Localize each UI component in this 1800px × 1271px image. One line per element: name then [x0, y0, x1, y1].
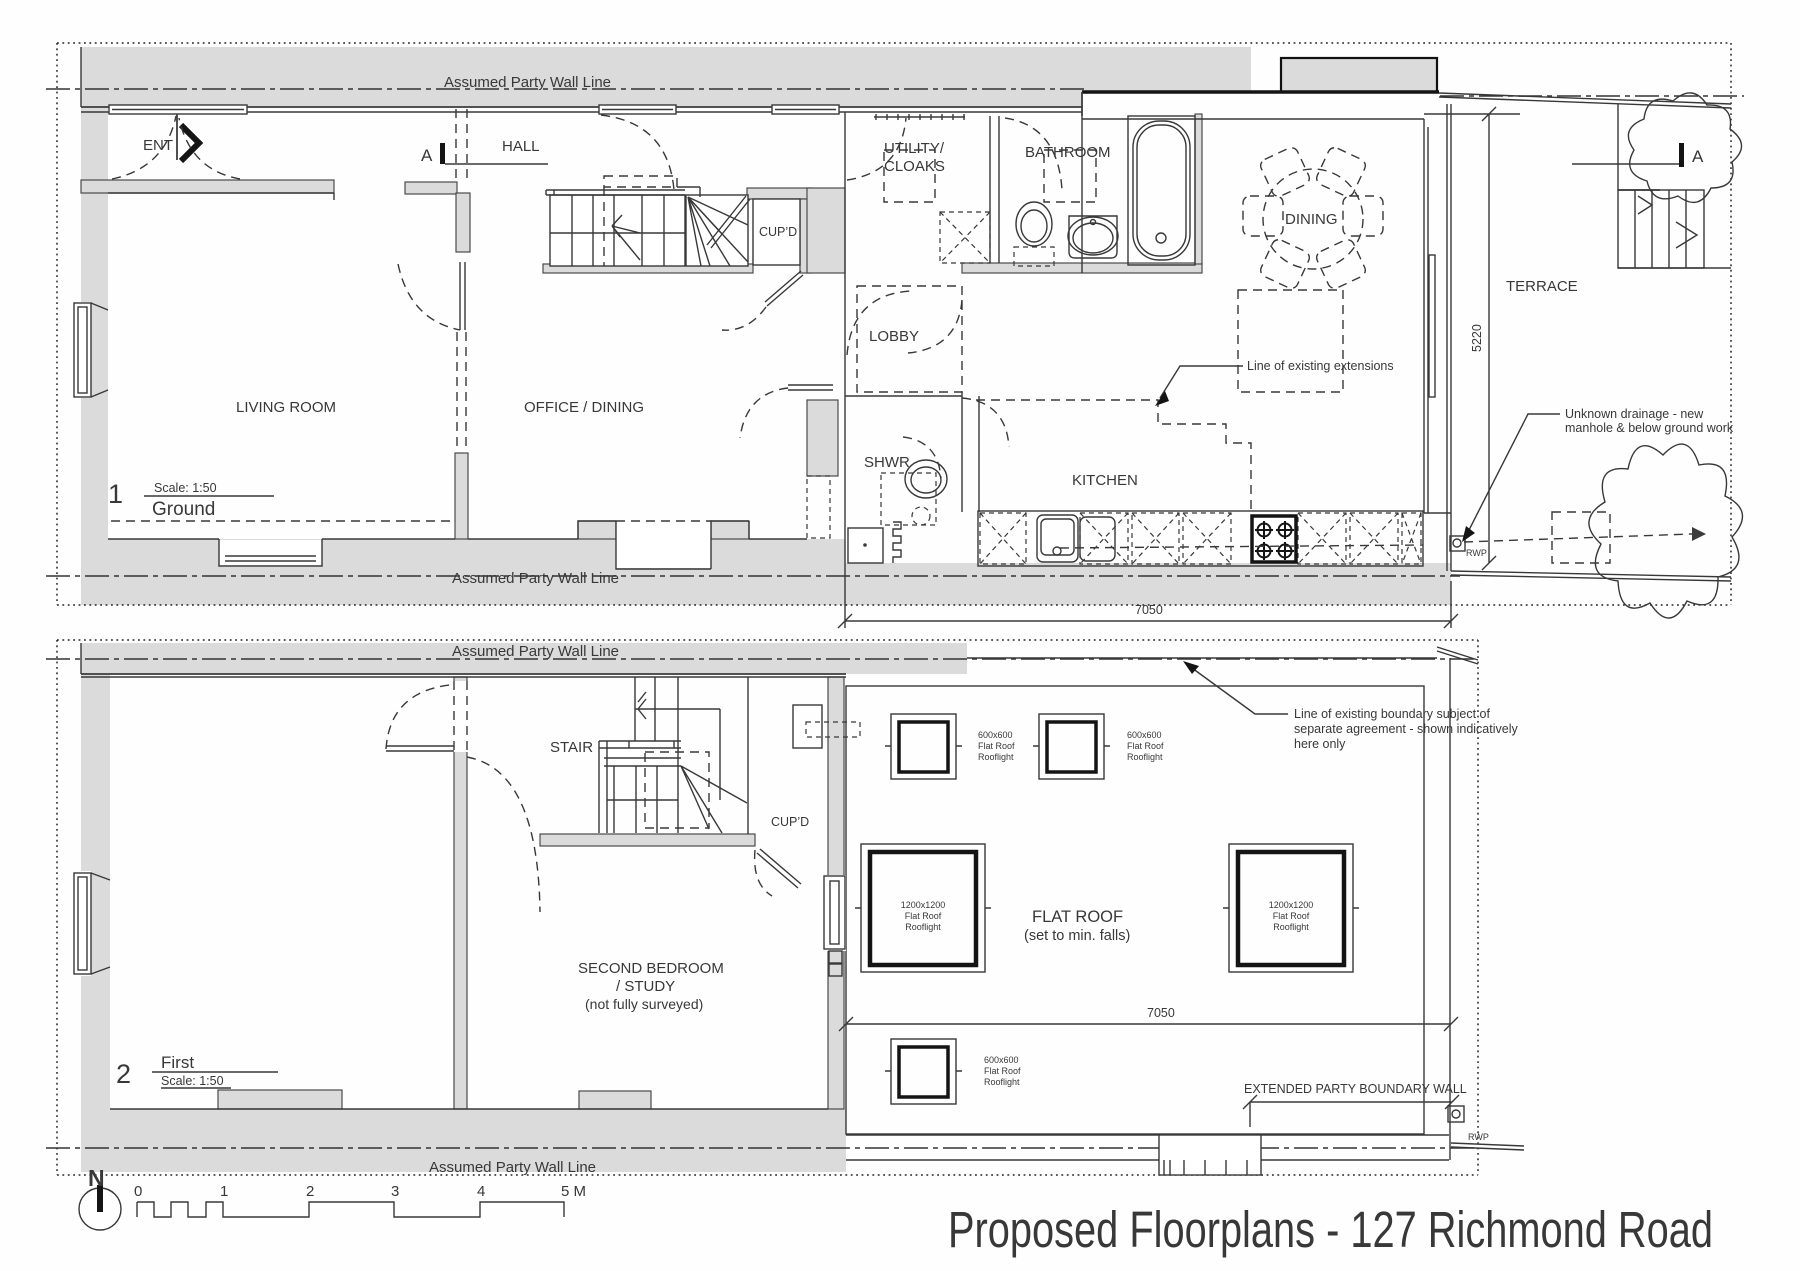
svg-text:600x600: 600x600	[978, 730, 1013, 740]
svg-text:/ STUDY: / STUDY	[616, 978, 675, 995]
svg-text:1: 1	[220, 1183, 228, 1200]
svg-text:Flat Roof: Flat Roof	[984, 1066, 1021, 1076]
svg-text:4: 4	[477, 1183, 485, 1200]
svg-text:Flat Roof: Flat Roof	[1273, 911, 1310, 921]
svg-text:600x600: 600x600	[984, 1055, 1019, 1065]
svg-text:BATHROOM: BATHROOM	[1025, 144, 1111, 161]
svg-text:Rooflight: Rooflight	[984, 1077, 1020, 1087]
svg-text:Assumed Party Wall Line: Assumed Party Wall Line	[429, 1159, 596, 1176]
svg-text:A: A	[1692, 147, 1704, 166]
svg-text:Proposed Floorplans - 127 Rich: Proposed Floorplans - 127 Richmond Road	[948, 1201, 1713, 1258]
svg-text:Rooflight: Rooflight	[978, 752, 1014, 762]
svg-text:0: 0	[134, 1183, 142, 1200]
svg-text:CUP’D: CUP’D	[759, 225, 797, 239]
svg-text:Line of existing boundary subj: Line of existing boundary subject of	[1294, 707, 1490, 721]
svg-text:5 M: 5 M	[561, 1183, 586, 1200]
svg-text:ENT: ENT	[143, 137, 173, 154]
svg-text:Ground: Ground	[152, 499, 215, 520]
svg-text:First: First	[161, 1053, 194, 1072]
svg-text:Rooflight: Rooflight	[1273, 922, 1309, 932]
svg-text:KITCHEN: KITCHEN	[1072, 472, 1138, 489]
svg-text:HALL: HALL	[502, 138, 540, 155]
svg-text:Flat Roof: Flat Roof	[905, 911, 942, 921]
svg-text:1: 1	[108, 479, 123, 509]
svg-text:Assumed Party Wall Line: Assumed Party Wall Line	[452, 643, 619, 660]
svg-text:7050: 7050	[1147, 1006, 1175, 1020]
svg-text:3: 3	[391, 1183, 399, 1200]
svg-text:Scale: 1:50: Scale: 1:50	[154, 481, 217, 495]
svg-text:Assumed Party Wall Line: Assumed Party Wall Line	[452, 570, 619, 587]
svg-text:CUP’D: CUP’D	[771, 815, 809, 829]
svg-text:2: 2	[306, 1183, 314, 1200]
svg-text:CLOAKS: CLOAKS	[884, 158, 945, 175]
svg-text:RWP: RWP	[1468, 1132, 1489, 1142]
svg-text:1200x1200: 1200x1200	[901, 900, 946, 910]
svg-text:UTILITY/: UTILITY/	[884, 140, 945, 157]
svg-text:A: A	[421, 146, 433, 165]
svg-text:OFFICE / DINING: OFFICE / DINING	[524, 399, 644, 416]
svg-text:(not fully surveyed): (not fully surveyed)	[585, 996, 703, 1012]
svg-text:here only: here only	[1294, 737, 1346, 751]
svg-text:Line of existing extensions: Line of existing extensions	[1247, 359, 1394, 373]
svg-text:LOBBY: LOBBY	[869, 328, 919, 345]
svg-text:separate agreement - shown ind: separate agreement - shown indicatively	[1294, 722, 1518, 736]
svg-text:2: 2	[116, 1059, 131, 1089]
svg-text:Rooflight: Rooflight	[1127, 752, 1163, 762]
svg-text:1200x1200: 1200x1200	[1269, 900, 1314, 910]
svg-text:N: N	[88, 1165, 105, 1191]
svg-text:600x600: 600x600	[1127, 730, 1162, 740]
svg-text:FLAT ROOF: FLAT ROOF	[1032, 908, 1123, 926]
svg-text:Flat Roof: Flat Roof	[1127, 741, 1164, 751]
svg-text:Unknown drainage - new: Unknown drainage - new	[1565, 407, 1704, 421]
svg-text:STAIR: STAIR	[550, 739, 593, 756]
svg-text:LIVING ROOM: LIVING ROOM	[236, 399, 336, 416]
svg-text:Assumed Party Wall Line: Assumed Party Wall Line	[444, 74, 611, 91]
svg-text:SECOND BEDROOM: SECOND BEDROOM	[578, 960, 724, 977]
svg-text:7050: 7050	[1135, 603, 1163, 617]
svg-text:RWP: RWP	[1466, 548, 1487, 558]
svg-text:manhole & below ground work: manhole & below ground work	[1565, 421, 1734, 435]
svg-text:5220: 5220	[1470, 324, 1484, 352]
svg-text:EXTENDED PARTY BOUNDARY WALL: EXTENDED PARTY BOUNDARY WALL	[1244, 1082, 1467, 1096]
svg-text:SHWR: SHWR	[864, 454, 910, 471]
svg-text:Rooflight: Rooflight	[905, 922, 941, 932]
svg-text:Flat Roof: Flat Roof	[978, 741, 1015, 751]
svg-text:(set to min. falls): (set to min. falls)	[1024, 928, 1130, 944]
svg-text:DINING: DINING	[1285, 211, 1338, 228]
svg-text:TERRACE: TERRACE	[1506, 278, 1578, 295]
svg-text:Scale: 1:50: Scale: 1:50	[161, 1074, 224, 1088]
